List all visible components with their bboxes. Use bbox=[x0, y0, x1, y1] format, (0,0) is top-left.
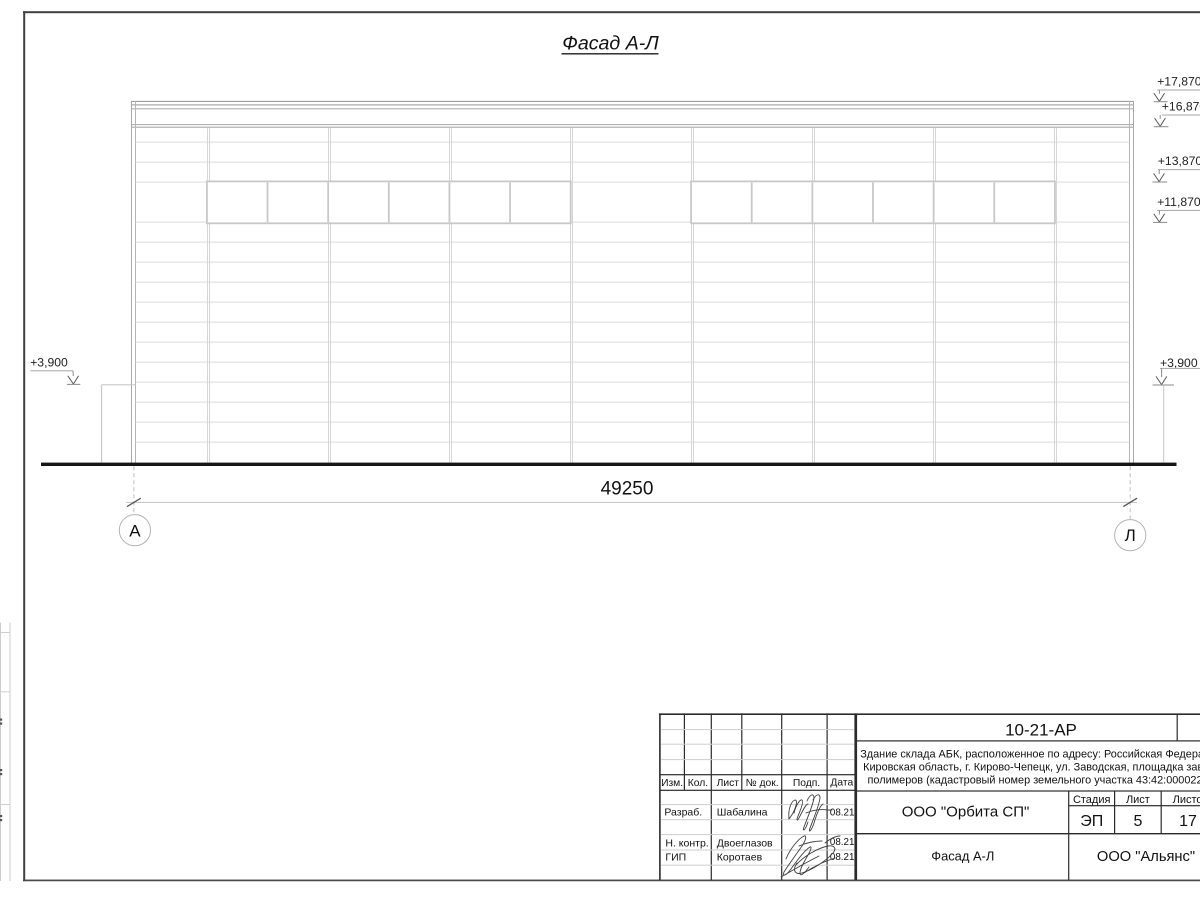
svg-text:+17,870: +17,870 bbox=[1157, 75, 1200, 89]
svg-text:+16,870: +16,870 bbox=[1162, 99, 1200, 113]
svg-text:5: 5 bbox=[1133, 813, 1142, 830]
svg-text:10-21-АР: 10-21-АР bbox=[1005, 721, 1077, 740]
svg-text:+13,870: +13,870 bbox=[1158, 154, 1200, 168]
svg-text:Дата: Дата bbox=[830, 778, 853, 789]
svg-text:Изм.: Изм. bbox=[661, 778, 683, 789]
svg-text:Лист: Лист bbox=[1126, 794, 1150, 806]
svg-text:Кировская область, г. Кирово-Ч: Кировская область, г. Кирово-Чепецк, ул.… bbox=[863, 761, 1200, 773]
svg-text:17: 17 bbox=[1179, 813, 1197, 830]
svg-text:ООО "Альянс": ООО "Альянс" bbox=[1097, 849, 1195, 865]
svg-text:Л: Л bbox=[1125, 526, 1136, 545]
svg-text:+3,900: +3,900 bbox=[1160, 356, 1198, 370]
svg-text:ЭП: ЭП bbox=[1080, 813, 1103, 830]
svg-text:+3,900: +3,900 bbox=[30, 356, 68, 370]
svg-text:Н. контр.: Н. контр. bbox=[665, 837, 708, 849]
svg-text:Разраб.: Разраб. bbox=[664, 806, 702, 818]
svg-text:Шабалина: Шабалина bbox=[717, 806, 768, 818]
svg-text:49250: 49250 bbox=[601, 479, 654, 500]
svg-text:Фасад А-Л: Фасад А-Л bbox=[562, 33, 659, 55]
svg-text:Кол.: Кол. bbox=[688, 778, 708, 789]
svg-text:А: А bbox=[129, 522, 141, 541]
svg-text:Коротаев: Коротаев bbox=[717, 852, 763, 864]
svg-text:№ док.: № док. bbox=[746, 778, 779, 789]
svg-text:Листов: Листов bbox=[1173, 794, 1200, 806]
svg-text:Стадия: Стадия bbox=[1073, 794, 1111, 806]
svg-text:Двоеглазов: Двоеглазов bbox=[717, 837, 773, 849]
svg-text:Фасад А-Л: Фасад А-Л bbox=[931, 849, 994, 864]
svg-text:ГИП: ГИП bbox=[665, 852, 686, 864]
svg-text:+11,870: +11,870 bbox=[1157, 195, 1200, 209]
svg-text:Здание склада АБК, расположенн: Здание склада АБК, расположенное по адре… bbox=[860, 749, 1200, 761]
svg-text:ООО "Орбита СП": ООО "Орбита СП" bbox=[902, 804, 1030, 821]
svg-text:Подп.: Подп. bbox=[793, 778, 820, 789]
svg-text:08.21: 08.21 bbox=[830, 852, 855, 863]
svg-text:08.21: 08.21 bbox=[830, 807, 855, 818]
svg-text:полимеров (кадастровый номер з: полимеров (кадастровый номер земельного … bbox=[868, 774, 1200, 786]
svg-text:Лист: Лист bbox=[717, 778, 740, 789]
